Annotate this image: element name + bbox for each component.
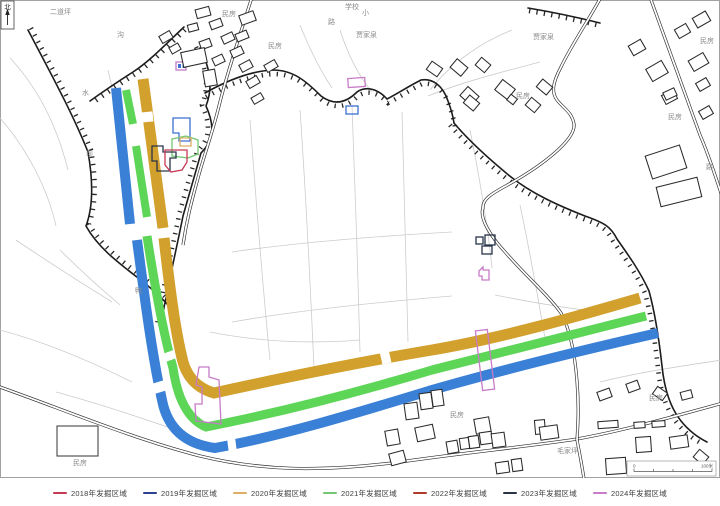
house [479, 431, 493, 445]
compound-outline [57, 426, 98, 456]
legend-label-2020: 2020年发掘区域 [251, 488, 307, 499]
map-label: 民房 [450, 410, 464, 419]
legend-label-2022: 2022年发掘区域 [431, 488, 487, 499]
house [239, 11, 257, 26]
house [656, 177, 702, 207]
map-label: 贾家泉 [533, 32, 554, 41]
house [626, 380, 640, 393]
house [680, 390, 693, 401]
house [597, 388, 612, 401]
house [692, 11, 710, 28]
legend-label-2018: 2018年发掘区域 [71, 488, 127, 499]
house [415, 424, 436, 441]
legend-item-2020: 2020年发掘区域 [233, 488, 307, 499]
legend-swatch-2019 [143, 492, 157, 494]
trench-band-gold-long [164, 238, 640, 393]
house [645, 145, 687, 179]
house [385, 429, 400, 446]
house [696, 78, 711, 92]
house [495, 461, 509, 474]
house [239, 60, 253, 73]
house [431, 389, 444, 406]
map-label: 坝 [86, 149, 93, 158]
legend-item-2018: 2018年发掘区域 [53, 488, 127, 499]
legend-item-2022: 2022年发掘区域 [413, 488, 487, 499]
house [536, 79, 552, 95]
house [195, 6, 211, 18]
house [628, 39, 646, 56]
house [699, 106, 714, 120]
trench-band-blue-long [137, 240, 658, 448]
map-label: 沟 [117, 30, 124, 39]
map-label: 民房 [268, 41, 282, 50]
house [475, 57, 491, 72]
legend-bar: 2018年发掘区域2019年发掘区域2020年发掘区域2021年发掘区域2022… [0, 481, 720, 505]
map-label: 学校 [345, 2, 359, 11]
house [674, 23, 690, 38]
map-label: 民房 [649, 393, 663, 402]
house [634, 422, 645, 429]
house [446, 440, 459, 454]
map-label: 民房 [700, 36, 714, 45]
house [635, 436, 651, 452]
legend-swatch-2022 [413, 492, 427, 494]
house [209, 18, 223, 30]
scale-bar: 0 100米 [627, 461, 716, 476]
map-label: 毛家坪 [557, 446, 578, 455]
house [669, 435, 688, 449]
legend-swatch-2020 [233, 492, 247, 494]
house [181, 48, 208, 68]
house [419, 392, 433, 410]
map-label: 贾家泉 [356, 30, 377, 39]
scarp-hatch-lines [28, 8, 707, 444]
house [652, 421, 665, 428]
trench-band-green-upper [126, 90, 133, 124]
legend-swatch-2023 [503, 492, 517, 494]
field-boundary-lines [0, 25, 720, 432]
map-label: 水 [82, 88, 89, 97]
house [187, 23, 198, 32]
scale-end-label: 100米 [701, 463, 714, 470]
house [221, 32, 235, 44]
house [539, 425, 559, 440]
legend-label-2023: 2023年发掘区域 [521, 488, 577, 499]
legend-swatch-2021 [323, 492, 337, 494]
house [203, 69, 218, 87]
map-label: 路 [706, 162, 713, 171]
house [450, 59, 468, 76]
legend-label-2024: 2024年发掘区域 [611, 488, 667, 499]
house [598, 420, 618, 428]
map-label: 鸭 [135, 286, 142, 295]
house [688, 53, 709, 72]
legend-item-2024: 2024年发掘区域 [593, 488, 667, 499]
map-label: 二道坪 [50, 7, 71, 16]
house [646, 60, 669, 81]
legend-swatch-2024 [593, 492, 607, 494]
legend-item-2023: 2023年发掘区域 [503, 488, 577, 499]
map-label: 民房 [668, 112, 682, 121]
excavation-site-map-page: 二道坪民房民房学校小路贾家泉贾家泉民房民房民房沟水坝鸭路民房民房毛家坪民房 北 … [0, 0, 720, 506]
house [491, 432, 506, 448]
legend-item-2019: 2019年发掘区域 [143, 488, 217, 499]
house [468, 435, 480, 448]
marker-2024-shape [479, 267, 489, 280]
legend-label-2021: 2021年发掘区域 [341, 488, 397, 499]
house [605, 457, 626, 474]
house [251, 93, 264, 105]
house [212, 54, 225, 66]
house [169, 43, 181, 54]
house [159, 31, 173, 44]
house [426, 61, 442, 77]
map-label: 民房 [73, 458, 87, 467]
map-label: 民房 [222, 9, 236, 18]
legend-label-2019: 2019年发掘区域 [161, 488, 217, 499]
house [404, 402, 419, 420]
legend-swatch-2018 [53, 492, 67, 494]
house [389, 450, 407, 465]
map-label: 路 [328, 17, 335, 26]
map-label: 民房 [516, 91, 530, 100]
house [235, 30, 249, 42]
house [230, 46, 244, 58]
trench-band-green-upper2 [136, 146, 147, 217]
site-map-canvas: 二道坪民房民房学校小路贾家泉贾家泉民房民房民房沟水坝鸭路民房民房毛家坪民房 北 … [0, 0, 720, 478]
map-label: 小 [362, 8, 369, 17]
legend-item-2021: 2021年发掘区域 [323, 488, 397, 499]
north-arrow: 北 [1, 1, 14, 29]
house [511, 458, 523, 471]
